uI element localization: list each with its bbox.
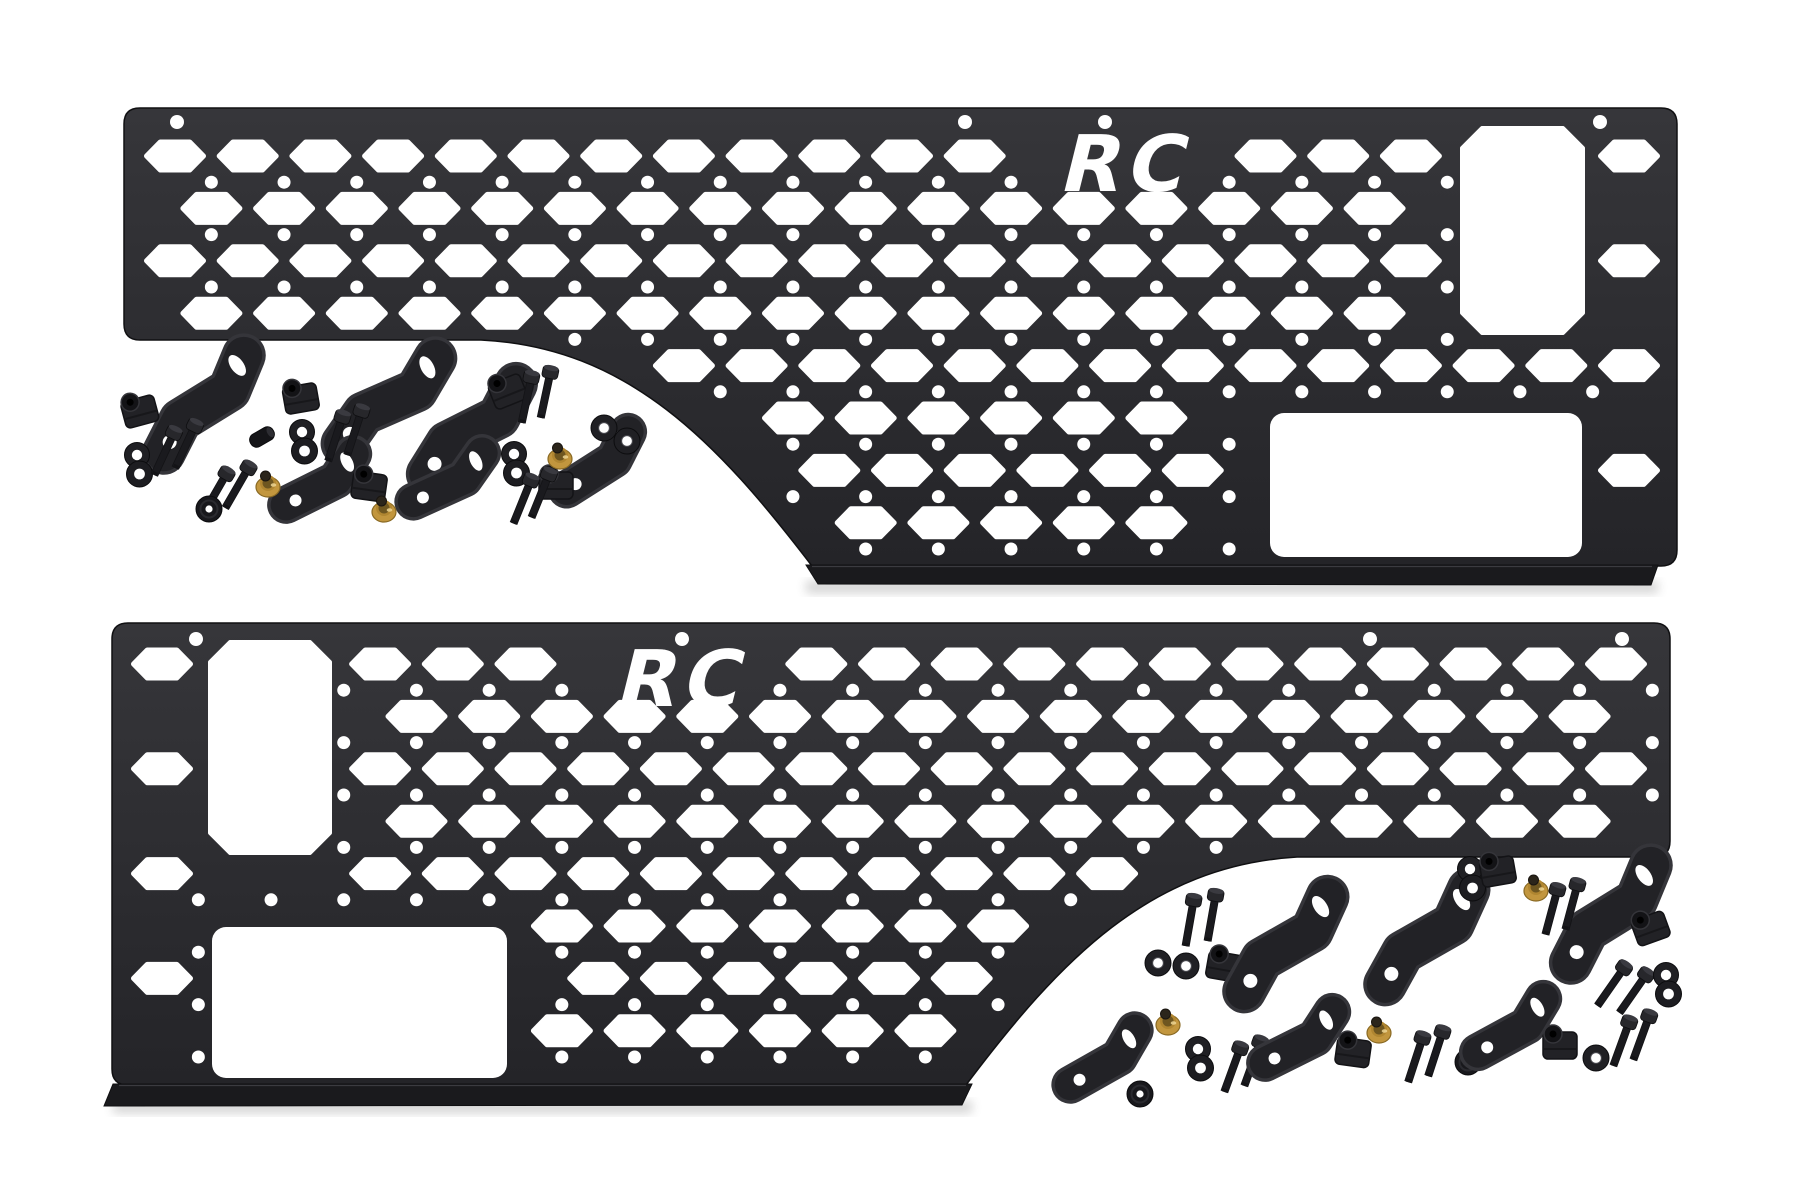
rect-cutout xyxy=(1270,413,1582,557)
hardware-bracket-large xyxy=(1378,882,1479,996)
hardware-washer-pair xyxy=(1654,963,1682,1008)
molle-panel-bottom: RC xyxy=(104,623,1670,1113)
mounting-hole xyxy=(1615,632,1629,646)
hardware-spacer xyxy=(247,424,277,449)
hardware-well-nut xyxy=(548,443,572,469)
mounting-hole xyxy=(189,632,203,646)
mounting-hole xyxy=(1363,632,1377,646)
hardware-washer-pair xyxy=(290,420,318,465)
hardware-grommet xyxy=(196,496,222,522)
hardware-washer-pair xyxy=(125,443,153,488)
hardware-washer xyxy=(591,415,617,441)
mounting-hole xyxy=(1593,115,1607,129)
hardware-bolt xyxy=(1421,1023,1453,1079)
rc-logo: RC xyxy=(609,633,761,725)
hardware-bolt xyxy=(1401,1029,1433,1085)
product-photo: RCRC xyxy=(0,0,1799,1200)
hardware-bracket-small xyxy=(1263,1004,1341,1078)
hardware-washer xyxy=(1583,1045,1609,1071)
hardware-bracket-small xyxy=(1476,992,1553,1067)
hardware-washer xyxy=(1173,953,1199,979)
molle-panel-top: RC xyxy=(124,108,1677,593)
hardware-bolt xyxy=(1217,1039,1250,1095)
hardware-bolt xyxy=(1200,887,1225,943)
mounting-hole xyxy=(958,115,972,129)
hardware-well-nut xyxy=(1524,875,1548,901)
hardware-clip-nut xyxy=(1543,1025,1577,1059)
hardware-bolt xyxy=(1178,892,1203,948)
hardware-bracket-large xyxy=(1237,889,1338,1003)
rect-cutout xyxy=(1462,128,1583,333)
hardware-washer-pair xyxy=(1186,1037,1214,1082)
hardware-washer xyxy=(1145,950,1171,976)
scene-svg: RCRC xyxy=(0,0,1799,1200)
panel-flange xyxy=(806,565,1658,585)
hardware-bolt xyxy=(1626,1007,1659,1063)
hardware-well-nut xyxy=(1156,1009,1180,1035)
hardware-clip-nut xyxy=(281,375,320,414)
rect-cutout xyxy=(212,927,507,1078)
hardware-well-nut xyxy=(256,471,280,497)
hardware-washer xyxy=(614,428,640,454)
hardware-bolt xyxy=(1606,1013,1639,1069)
rect-cutout xyxy=(210,642,330,853)
hardware-clip-nut xyxy=(118,387,160,429)
panel-flange xyxy=(104,1084,972,1106)
rc-logo: RC xyxy=(1053,118,1205,210)
hardware-well-nut xyxy=(1367,1017,1391,1043)
hardware-grommet xyxy=(1127,1081,1153,1107)
mounting-hole xyxy=(170,115,184,129)
